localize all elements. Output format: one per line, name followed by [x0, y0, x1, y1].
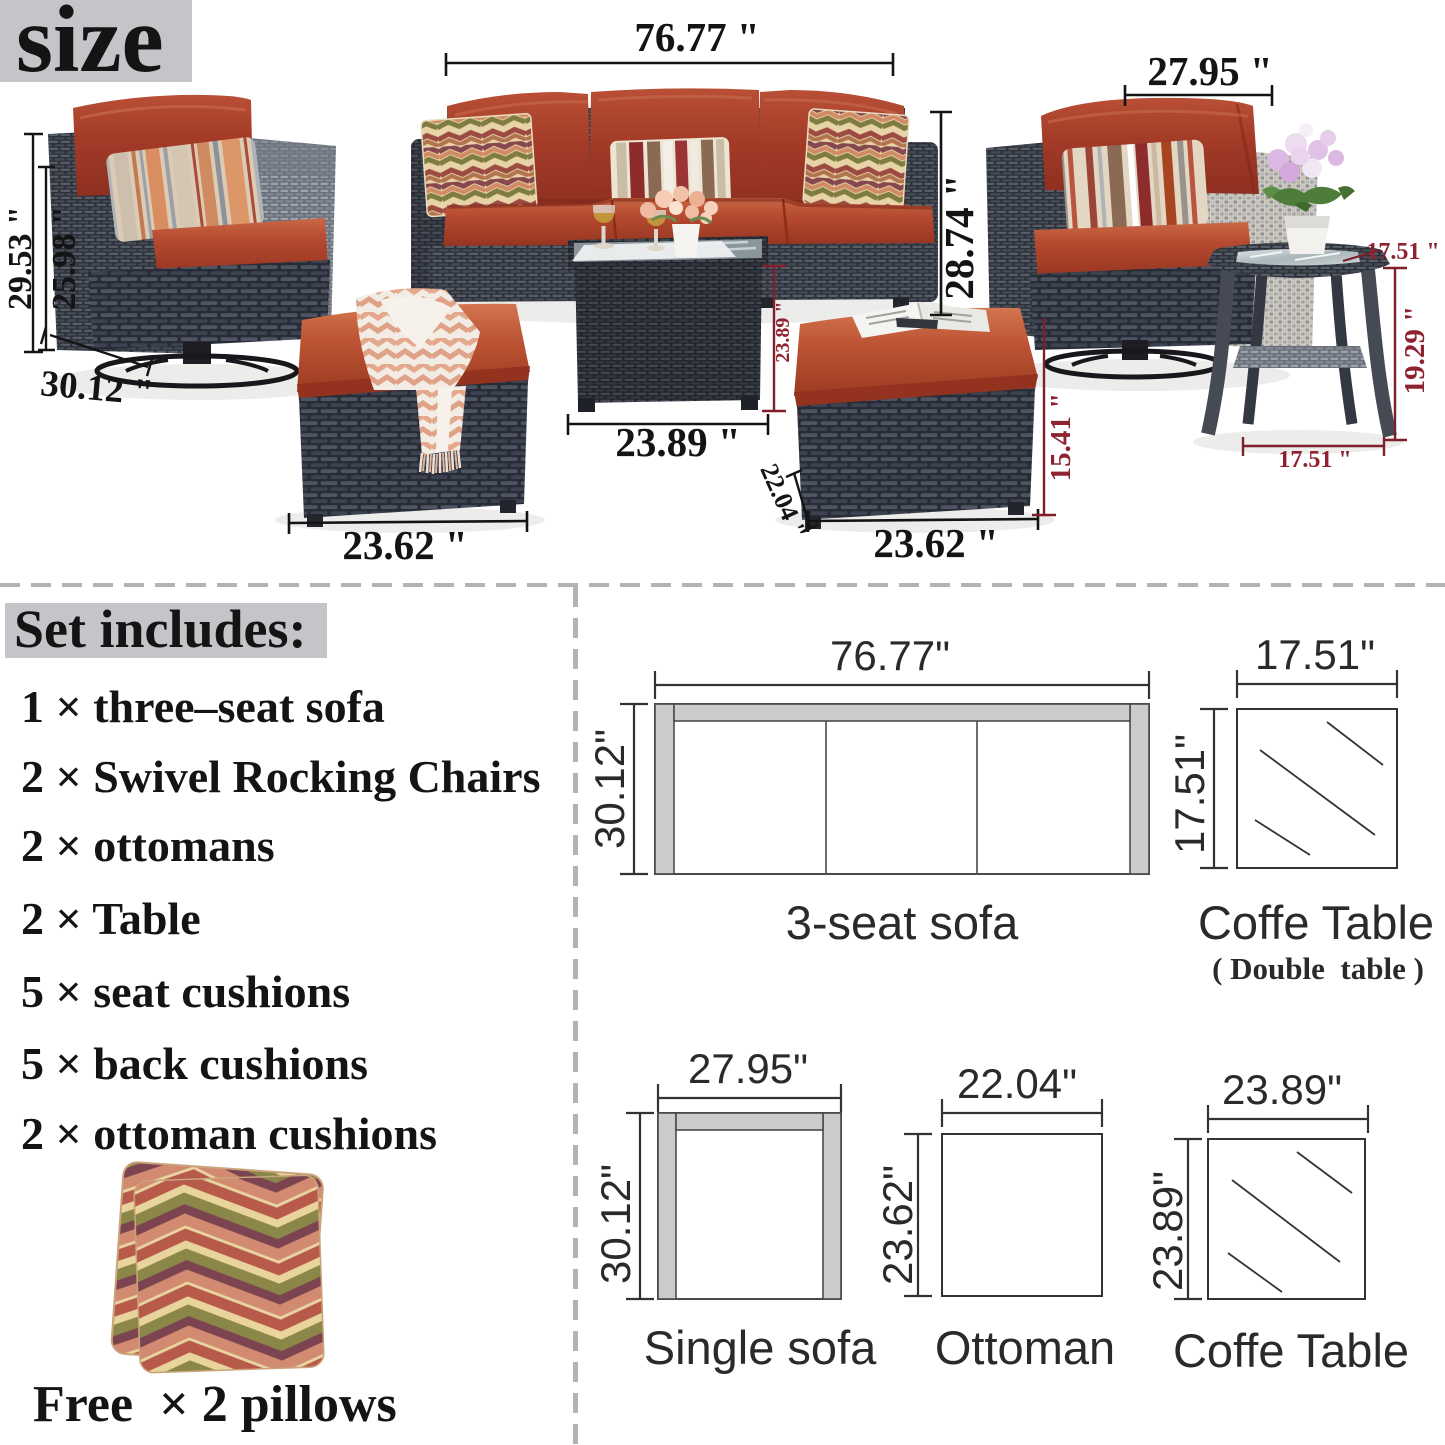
- svg-text:19.29 ": 19.29 ": [1399, 306, 1431, 395]
- svg-text:23.62": 23.62": [874, 1165, 921, 1285]
- svg-text:30.12": 30.12": [586, 729, 633, 849]
- svg-text:Coffe Table: Coffe Table: [1198, 896, 1434, 949]
- svg-text:76.77 ": 76.77 ": [634, 14, 759, 60]
- svg-text:30.12": 30.12": [592, 1164, 639, 1284]
- svg-text:29.53 ": 29.53 ": [2, 206, 39, 310]
- svg-text:22.04": 22.04": [957, 1060, 1077, 1107]
- svg-text:17.51 ": 17.51 ": [1366, 239, 1439, 265]
- svg-text:17.51": 17.51": [1255, 631, 1375, 678]
- svg-text:23.89": 23.89": [1222, 1066, 1342, 1113]
- svg-text:( Double table ): ( Double table ): [1212, 951, 1424, 986]
- svg-text:Ottoman: Ottoman: [935, 1321, 1115, 1374]
- svg-text:27.95 ": 27.95 ": [1147, 48, 1272, 94]
- svg-text:23.89": 23.89": [1144, 1171, 1191, 1291]
- svg-text:23.62 ": 23.62 ": [342, 522, 467, 568]
- svg-text:Coffe Table: Coffe Table: [1173, 1324, 1409, 1377]
- svg-text:3-seat sofa: 3-seat sofa: [786, 896, 1019, 949]
- svg-text:15.41 ": 15.41 ": [1045, 393, 1077, 482]
- svg-text:27.95": 27.95": [688, 1045, 808, 1092]
- svg-text:25.98 ": 25.98 ": [46, 206, 83, 310]
- svg-text:23.62 ": 23.62 ": [873, 520, 998, 566]
- svg-text:17.51 ": 17.51 ": [1278, 447, 1351, 473]
- svg-text:28.74 ": 28.74 ": [936, 174, 982, 299]
- svg-text:23.89 ": 23.89 ": [615, 419, 740, 465]
- svg-text:76.77": 76.77": [830, 632, 950, 679]
- svg-text:Single sofa: Single sofa: [644, 1321, 877, 1374]
- svg-text:23.89 ": 23.89 ": [772, 301, 794, 362]
- svg-text:17.51": 17.51": [1166, 734, 1213, 854]
